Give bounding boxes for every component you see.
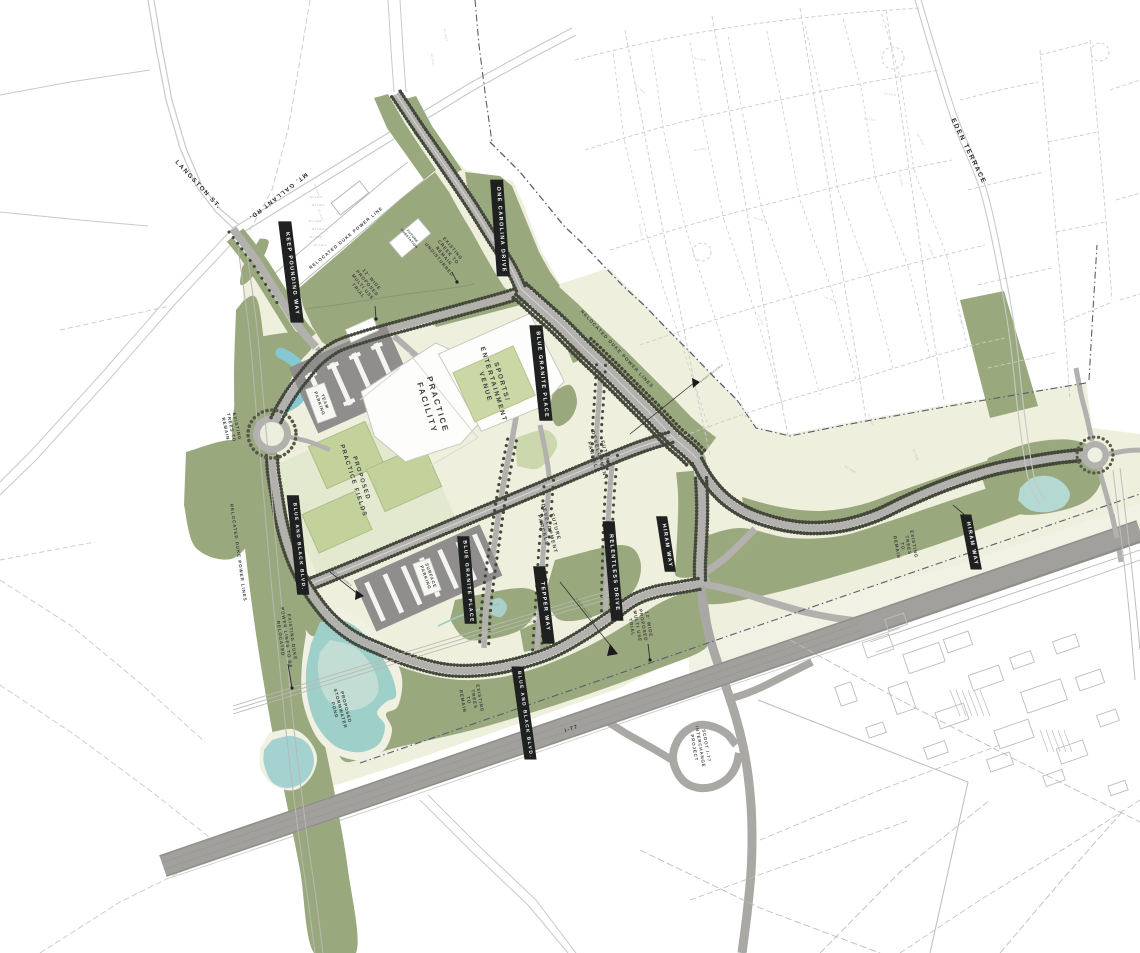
svg-text:111 11111: 111 11111 (312, 204, 325, 207)
svg-text:111 11111: 111 11111 (314, 244, 327, 247)
svg-text:111 11111: 111 11111 (312, 228, 325, 231)
svg-text:111 11111: 111 11111 (310, 236, 323, 239)
svg-text:111 11111: 111 11111 (310, 196, 323, 199)
svg-text:111 11111: 111 11111 (309, 220, 322, 223)
